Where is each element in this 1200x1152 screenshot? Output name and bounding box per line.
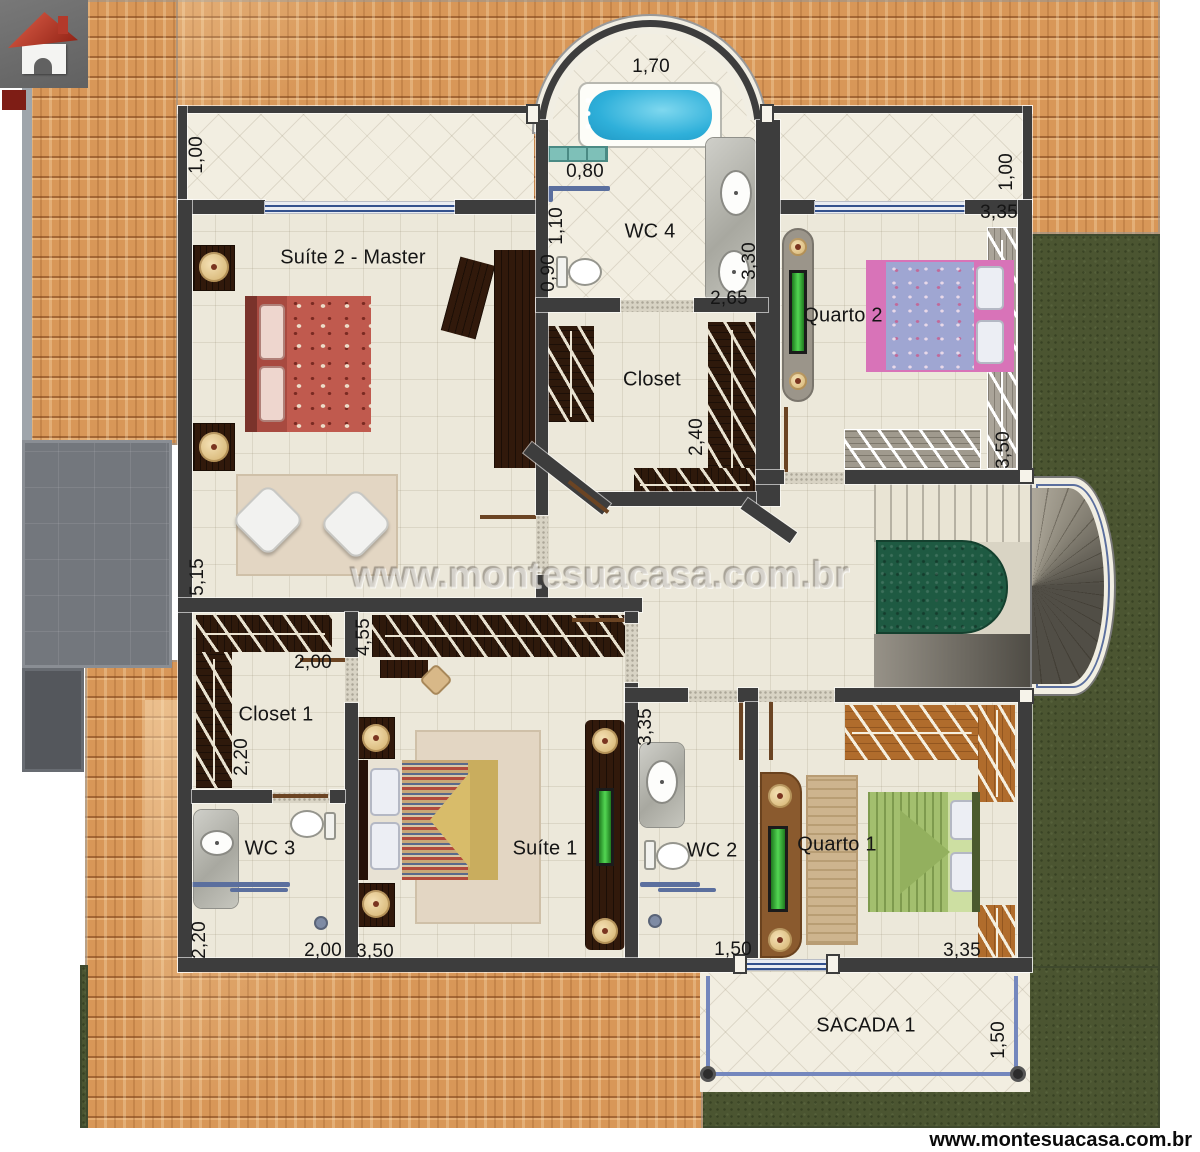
toilet-tank	[324, 812, 336, 840]
railing	[706, 976, 710, 1076]
wardrobe	[978, 905, 1015, 960]
entry-pad	[22, 668, 84, 772]
lamp	[592, 918, 618, 944]
logo-house-arch-icon	[34, 58, 52, 74]
room-label-wc4: WC 4	[625, 221, 676, 244]
wall	[596, 492, 756, 506]
floorplan-canvas: Suíte 2 - Master WC 4 Quarto 2 Closet Cl…	[0, 0, 1200, 1152]
pillow	[370, 768, 400, 816]
toilet	[656, 842, 690, 870]
bed-headboard	[245, 296, 257, 432]
wall	[756, 470, 784, 484]
bed-throw	[468, 760, 498, 880]
lamp	[768, 928, 792, 952]
wardrobe	[978, 705, 1015, 802]
wall	[845, 470, 1032, 484]
grass-sliver-left	[80, 965, 88, 1128]
pillow	[259, 366, 285, 422]
dim-label: 0,90	[538, 254, 560, 292]
lamp	[768, 784, 792, 808]
dim-label: 5,15	[187, 558, 209, 596]
door-leaf	[739, 702, 743, 760]
door-threshold	[625, 623, 638, 683]
balcony-door-glass	[745, 960, 830, 970]
pillow	[370, 822, 400, 870]
wall	[536, 298, 620, 312]
dim-label: 2,00	[304, 940, 342, 962]
railing-post	[700, 1066, 716, 1082]
bed-headboard	[358, 760, 368, 880]
dim-label: 3,30	[739, 242, 761, 280]
shower-glass	[548, 186, 610, 191]
lamp	[199, 432, 229, 462]
watermark: www.montesuacasa.com.br	[350, 555, 849, 598]
wall-jamb	[760, 104, 774, 124]
stairs-void	[876, 540, 1008, 634]
bathtub-water	[588, 90, 712, 140]
sink	[720, 170, 752, 216]
wall	[330, 790, 345, 803]
wall	[625, 612, 638, 623]
closet-rack	[196, 615, 332, 652]
dim-label: 1,10	[546, 207, 568, 245]
toilet	[568, 258, 602, 286]
room-label-closet: Closet	[623, 369, 681, 392]
tv	[768, 826, 788, 912]
lamp	[789, 238, 807, 256]
wall	[1018, 200, 1032, 470]
dim-label: 1,00	[186, 136, 208, 174]
window	[265, 202, 455, 213]
door-threshold	[345, 657, 358, 703]
stairs-upper-flight	[874, 484, 1032, 542]
shower-glass	[190, 882, 290, 887]
shower-glass	[230, 888, 288, 892]
dim-label: 3,35	[635, 708, 657, 746]
lamp	[199, 252, 229, 282]
dim-label: 1,00	[996, 153, 1018, 191]
sink	[646, 760, 678, 804]
stairs-bay-outer	[1030, 476, 1116, 696]
shower-glass	[640, 882, 700, 887]
wall	[830, 958, 1032, 972]
door-threshold	[620, 300, 694, 312]
room-label-suite2: Suíte 2 - Master	[280, 247, 425, 270]
dim-label: 3,50	[993, 431, 1015, 469]
dim-label: 4,55	[353, 618, 375, 656]
shower-knob	[648, 914, 662, 928]
lamp	[789, 372, 807, 390]
toilet-tank	[644, 840, 656, 870]
railing	[1014, 976, 1018, 1076]
dim-label: 3,50	[356, 941, 394, 963]
lamp	[362, 724, 390, 752]
dim-label: 1,50	[988, 1021, 1010, 1059]
toilet	[290, 810, 324, 838]
bed-headboard	[972, 792, 980, 912]
lamp	[592, 728, 618, 754]
door-threshold	[758, 690, 835, 702]
room-label-wc2: WC 2	[687, 840, 738, 863]
room-label-quarto2: Quarto 2	[803, 305, 882, 328]
dresser	[845, 430, 980, 468]
footer-bar: www.montesuacasa.com.br	[0, 1128, 1200, 1152]
wall	[178, 106, 536, 113]
window	[815, 202, 965, 213]
pillow	[259, 304, 285, 360]
tv	[596, 788, 614, 866]
wardrobe	[845, 705, 978, 760]
room-label-wc3: WC 3	[245, 838, 296, 861]
lamp	[362, 890, 390, 918]
room-label-quarto1: Quarto 1	[797, 834, 876, 857]
shower-glass	[548, 186, 553, 202]
wall-jamb	[526, 104, 540, 124]
closet-rack	[548, 326, 594, 422]
wall	[178, 598, 642, 612]
bed-blanket-floral	[287, 296, 371, 432]
sink	[200, 830, 234, 856]
door-leaf	[572, 618, 625, 622]
closet-rack	[708, 322, 756, 480]
vanity-counter	[548, 146, 608, 162]
wall	[345, 703, 358, 963]
wall	[192, 790, 272, 803]
floor-terrace-left	[178, 112, 534, 202]
pillow	[976, 266, 1004, 310]
wall	[745, 702, 758, 958]
wall	[455, 200, 536, 214]
dim-label: 2,20	[231, 738, 253, 776]
fence-strip	[22, 88, 32, 440]
dim-label: 1,70	[632, 56, 670, 78]
wall	[625, 688, 688, 702]
logo-badge	[2, 90, 26, 110]
pillow	[976, 320, 1004, 364]
shower-glass	[658, 888, 716, 892]
dim-label: 2,40	[686, 418, 708, 456]
railing-post	[1010, 1066, 1026, 1082]
footer-url: www.montesuacasa.com.br	[929, 1129, 1192, 1152]
stairs-winder-steps	[1032, 488, 1104, 684]
sink-counter	[194, 810, 238, 908]
stairs-lower-flight	[874, 634, 1032, 692]
room-label-suite1: Suíte 1	[513, 838, 578, 861]
wall	[178, 958, 745, 972]
wall	[756, 120, 780, 506]
door-leaf	[769, 702, 773, 760]
dim-label: 3,35	[980, 202, 1018, 224]
dim-label: 0,80	[566, 161, 604, 183]
wall	[738, 688, 758, 702]
wall-jamb	[1018, 688, 1034, 704]
railing	[706, 1072, 1018, 1076]
wall	[1018, 692, 1032, 972]
floor-terrace-right	[764, 112, 1032, 202]
door-leaf	[784, 407, 788, 472]
bed-blanket-floral	[886, 262, 974, 370]
wall	[764, 106, 1032, 113]
site-logo	[0, 0, 88, 88]
wall-jamb	[1018, 468, 1034, 484]
logo-chimney-icon	[58, 16, 68, 34]
dim-label: 2,65	[710, 288, 748, 310]
wardrobe	[494, 250, 538, 468]
door-threshold	[784, 472, 845, 484]
door-leaf	[272, 794, 328, 798]
desk	[380, 660, 428, 678]
wall	[835, 688, 1032, 702]
bathtub-jets	[583, 94, 595, 136]
door-leaf	[480, 515, 536, 519]
dim-label: 2,20	[189, 921, 211, 959]
dim-label: 1,50	[714, 939, 752, 961]
rug	[806, 775, 858, 945]
closet-rack	[196, 652, 232, 788]
room-label-sacada1: SACADA 1	[816, 1015, 915, 1038]
driveway	[22, 440, 172, 668]
shower-knob	[314, 916, 328, 930]
wall	[1023, 106, 1032, 202]
wall-jamb	[826, 954, 840, 974]
dim-label: 3,35	[943, 940, 981, 962]
dim-label: 2,00	[294, 652, 332, 674]
room-label-closet1: Closet 1	[239, 704, 314, 727]
door-threshold	[688, 690, 738, 702]
